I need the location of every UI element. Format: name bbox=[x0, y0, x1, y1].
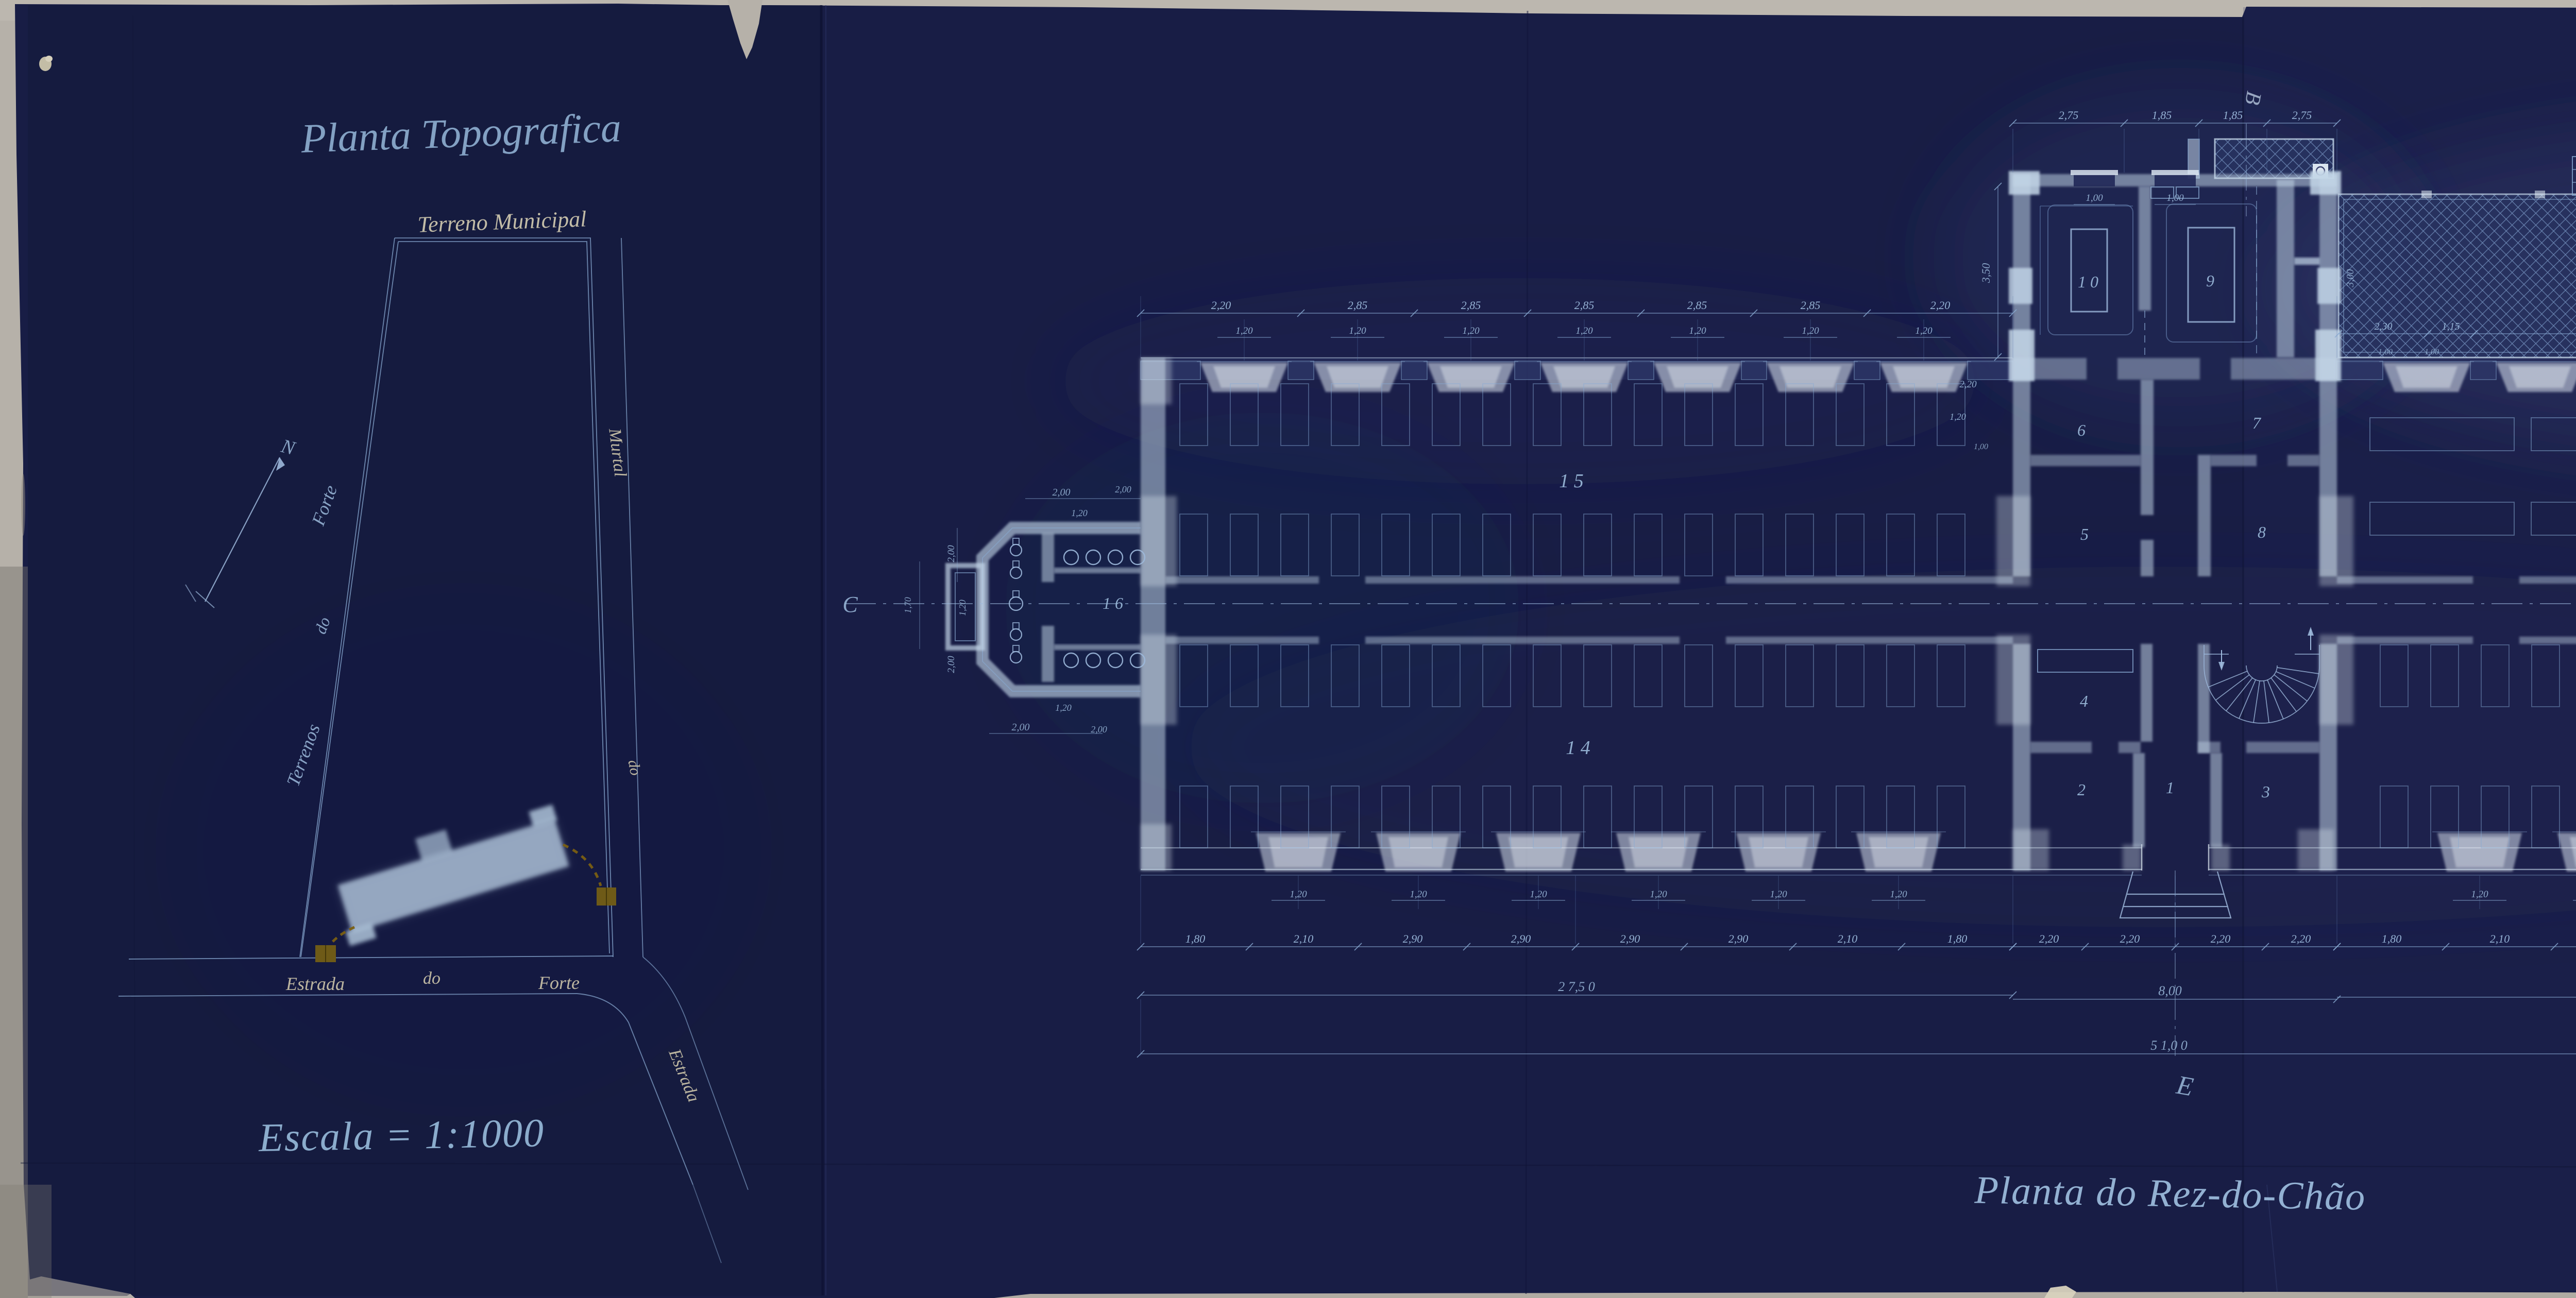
svg-text:2,00: 2,00 bbox=[1012, 722, 1030, 733]
svg-text:2,20: 2,20 bbox=[2120, 932, 2140, 945]
svg-text:2: 2 bbox=[2077, 780, 2086, 799]
svg-text:1,80: 1,80 bbox=[1185, 932, 1206, 945]
svg-text:4: 4 bbox=[2080, 692, 2088, 710]
svg-text:5: 5 bbox=[2080, 525, 2089, 543]
svg-text:3,00: 3,00 bbox=[2345, 269, 2356, 288]
svg-text:9: 9 bbox=[2206, 271, 2214, 290]
svg-text:8: 8 bbox=[2258, 523, 2266, 541]
svg-text:1 0: 1 0 bbox=[2078, 272, 2098, 291]
svg-text:do: do bbox=[625, 759, 645, 777]
svg-text:3: 3 bbox=[2261, 782, 2270, 801]
svg-text:1,80: 1,80 bbox=[2382, 932, 2402, 945]
svg-text:1,15: 1,15 bbox=[2442, 321, 2460, 332]
svg-text:1,00: 1,00 bbox=[1974, 442, 1988, 451]
svg-text:1 5: 1 5 bbox=[1559, 470, 1584, 492]
svg-text:Estrada: Estrada bbox=[285, 973, 345, 994]
svg-text:2,75: 2,75 bbox=[2292, 109, 2312, 122]
svg-text:1,00: 1,00 bbox=[2086, 193, 2103, 203]
svg-text:1,70: 1,70 bbox=[903, 597, 913, 613]
svg-text:1,00: 1,00 bbox=[2378, 348, 2393, 356]
svg-text:2,00: 2,00 bbox=[1091, 724, 1107, 735]
svg-text:2,00: 2,00 bbox=[1115, 484, 1131, 494]
svg-text:1,85: 1,85 bbox=[2223, 109, 2243, 122]
svg-text:1 6: 1 6 bbox=[1103, 594, 1123, 612]
svg-text:3,50: 3,50 bbox=[1979, 263, 1992, 284]
svg-text:2,90: 2,90 bbox=[1511, 932, 1531, 945]
svg-text:2,90: 2,90 bbox=[1728, 932, 1749, 945]
svg-text:2,85: 2,85 bbox=[1687, 299, 1707, 312]
svg-text:Planta do Rez-do-Chão: Planta do Rez-do-Chão bbox=[1974, 1168, 2366, 1218]
svg-text:2,00: 2,00 bbox=[1053, 487, 1071, 498]
svg-text:1,20: 1,20 bbox=[1071, 508, 1088, 518]
svg-text:2,20: 2,20 bbox=[1959, 379, 1977, 390]
svg-text:6: 6 bbox=[2077, 421, 2086, 439]
svg-text:2,10: 2,10 bbox=[1838, 932, 1858, 945]
svg-text:2,00: 2,00 bbox=[946, 545, 957, 562]
svg-text:1,20: 1,20 bbox=[1055, 703, 1072, 713]
svg-text:1 4: 1 4 bbox=[1566, 737, 1590, 759]
svg-text:2,20: 2,20 bbox=[1930, 299, 1951, 312]
svg-text:2,20: 2,20 bbox=[2211, 932, 2231, 945]
svg-text:2,85: 2,85 bbox=[1461, 299, 1481, 312]
svg-text:2,85: 2,85 bbox=[1574, 299, 1595, 312]
svg-text:1,20: 1,20 bbox=[1950, 412, 1966, 422]
svg-text:1,00: 1,00 bbox=[2166, 193, 2184, 203]
svg-text:2,85: 2,85 bbox=[1801, 299, 1821, 312]
svg-text:2,85: 2,85 bbox=[1348, 299, 1368, 312]
svg-text:5 1,0 0: 5 1,0 0 bbox=[2150, 1038, 2188, 1053]
svg-text:2,90: 2,90 bbox=[1403, 932, 1423, 945]
svg-text:2,20: 2,20 bbox=[2291, 932, 2311, 945]
svg-text:8,00: 8,00 bbox=[2158, 983, 2182, 998]
svg-text:Forte: Forte bbox=[538, 972, 580, 993]
svg-text:7: 7 bbox=[2252, 414, 2262, 432]
svg-text:2,90: 2,90 bbox=[1620, 932, 1640, 945]
svg-text:2,10: 2,10 bbox=[2490, 932, 2510, 945]
svg-text:Escala = 1:1000: Escala = 1:1000 bbox=[258, 1110, 545, 1160]
svg-text:C: C bbox=[842, 592, 858, 617]
svg-text:2,00: 2,00 bbox=[946, 656, 957, 673]
svg-text:2,10: 2,10 bbox=[1294, 932, 1314, 945]
svg-text:2,20: 2,20 bbox=[2039, 932, 2059, 945]
svg-text:2,75: 2,75 bbox=[2059, 109, 2079, 122]
svg-text:do: do bbox=[423, 969, 440, 988]
svg-text:2,20: 2,20 bbox=[1211, 299, 1231, 312]
svg-text:1,80: 1,80 bbox=[1947, 932, 1968, 945]
svg-text:1,20: 1,20 bbox=[957, 600, 968, 616]
svg-text:1,00: 1,00 bbox=[2425, 348, 2439, 356]
svg-text:1,85: 1,85 bbox=[2152, 109, 2172, 122]
svg-text:2,30: 2,30 bbox=[2375, 321, 2393, 332]
svg-text:2 7,5 0: 2 7,5 0 bbox=[1558, 979, 1595, 994]
svg-text:1: 1 bbox=[2166, 778, 2174, 797]
